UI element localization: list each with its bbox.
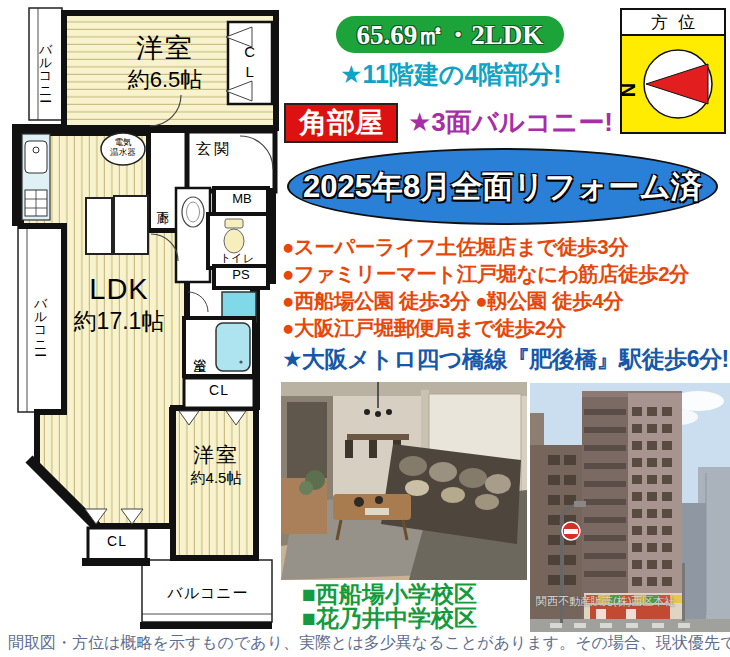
bathtub-icon [216,323,250,371]
label-ps: PS [216,268,266,282]
school-junior-high: ■花乃井中学校区 [302,606,477,630]
label-room1-name: 洋室 [95,34,235,64]
compass-box: 方位 N [620,8,726,134]
highlight-line: ●西船場公園 徒歩3分 ●靱公園 徒歩4分 [282,287,689,314]
highlights-list: ●スーパーライフ土佐堀店まで徒歩3分 ●ファミリーマート江戸堀なにわ筋店徒歩2分… [282,233,689,341]
highlight-line: ●大阪江戸堀郵便局まで徒歩2分 [282,314,689,341]
compass-north-letter: N [622,83,639,97]
label-water-heater: 電気 温水器 [101,137,145,157]
label-room1-size: 約6.5帖 [95,68,235,92]
kitchen-island-icon [86,198,112,254]
balcony-note: ★3面バルコニー! [408,105,613,140]
label-closet-mid: CL [184,383,254,398]
school-elementary: ■西船場小学校区 [302,582,477,606]
label-balcony-left: バルコニー [26,250,54,388]
label-closet-top: CL [234,30,264,96]
toilet-icon [224,219,244,253]
flyer-page: バルコニー 洋室 約6.5帖 CL 電気 温水器 玄関 廊下 MB トイレ PS… [0,0,730,657]
drain-icon [239,360,242,363]
label-closet-bottom: CL [89,534,145,549]
dining-table-icon [347,434,409,440]
label-room2-name: 洋室 [178,443,254,466]
label-entrance: 玄関 [188,141,240,158]
label-water-heater-line1: 電気 [115,137,132,147]
kitchen-counter-icon [22,134,50,220]
washbasin-icon [182,197,204,227]
label-balcony-top: バルコニー [31,14,59,116]
label-ldk-name: LDK [59,274,179,306]
highlight-line: ●ファミリーマート江戸堀なにわ筋店徒歩2分 [282,260,689,287]
reform-banner: 2025年8月全面リフォーム済 [287,148,718,225]
corner-room-badge: 角部屋 [284,103,398,143]
wall [82,558,150,566]
highlight-line: ●スーパーライフ土佐堀店まで徒歩3分 [282,233,689,260]
label-ldk-size: 約17.1帖 [44,309,194,334]
label-balcony-bottom: バルコニー [147,585,269,602]
label-corridor: 廊下 [151,176,173,228]
building-photo-caption: 関西不動産販売(株)西区本社 [536,594,726,609]
compass-title: 方位 [622,10,724,36]
coffee-table-icon [333,494,411,520]
floor-note: ★11階建の4階部分! [340,58,562,91]
label-mb: MB [216,192,268,206]
compass-icon: N [622,36,724,132]
label-toilet: トイレ [206,252,268,264]
floor-plan: バルコニー 洋室 約6.5帖 CL 電気 温水器 玄関 廊下 MB トイレ PS… [0,0,285,640]
disclaimer-text: 間取図・方位は概略を示すものであり、実際とは多少異なることがあります。その場合、… [8,633,726,654]
label-room2-size: 約4.5帖 [172,470,260,487]
label-water-heater-line2: 温水器 [110,147,136,157]
kitchen-island-icon [114,196,148,254]
interior-photo [281,382,527,580]
area-type-badge: 65.69㎡・2LDK [336,16,564,53]
school-districts: ■西船場小学校区 ■花乃井中学校区 [302,582,477,630]
station-note: ★大阪メトロ四つ橋線『肥後橋』駅徒歩6分! [282,344,729,375]
